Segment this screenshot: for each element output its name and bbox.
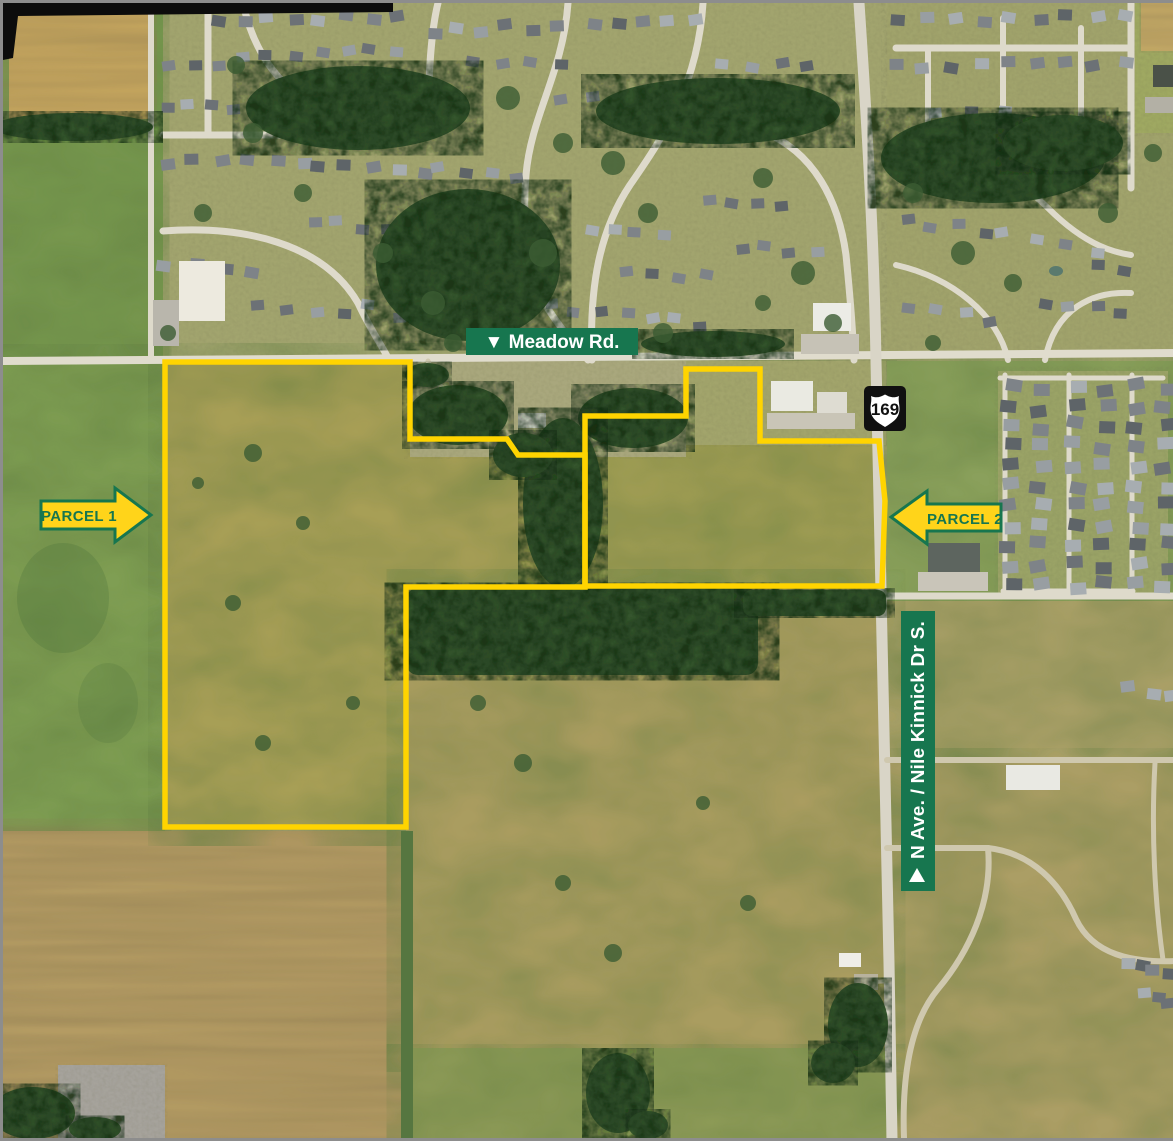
map-annotations: ▼ Meadow Rd. PARCEL 1 PARCEL 2 169 N Ave…	[3, 3, 1173, 1138]
parcel-2-arrow: PARCEL 2	[891, 491, 1003, 544]
parcel-1-arrow: PARCEL 1	[41, 488, 151, 542]
aerial-parcel-map: ▼ Meadow Rd. PARCEL 1 PARCEL 2 169 N Ave…	[0, 0, 1173, 1141]
parcel-2-arrow-text: PARCEL 2	[927, 511, 1003, 528]
parcel-1-boundary	[165, 362, 585, 827]
route-shield-number: 169	[871, 400, 899, 419]
meadow-rd-label-text: ▼ Meadow Rd.	[485, 332, 620, 353]
parcel-2-boundary	[585, 369, 885, 586]
us-route-169-shield: 169	[864, 386, 906, 431]
street-label-text: N Ave. / Nile Kinnick Dr S.	[908, 621, 928, 859]
parcel-1-arrow-text: PARCEL 1	[41, 508, 117, 525]
n-ave-street-label: N Ave. / Nile Kinnick Dr S.	[901, 611, 935, 891]
meadow-rd-label: ▼ Meadow Rd.	[466, 328, 638, 355]
